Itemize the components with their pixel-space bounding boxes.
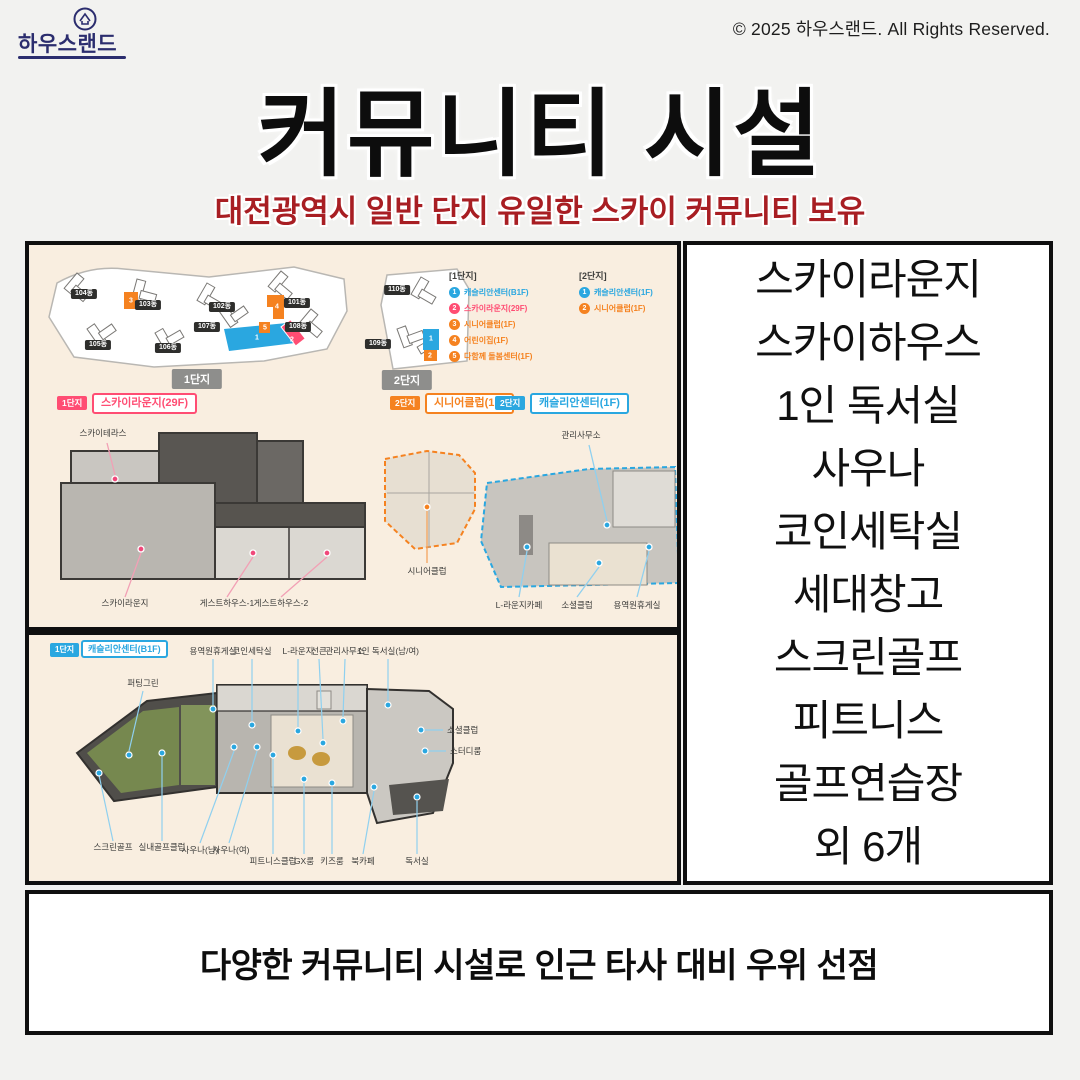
facility-list: 스카이라운지 스카이하우스 1인 독서실 사우나 코인세탁실 세대창고 스크린골…: [687, 245, 1049, 881]
facility-item: 스카이하우스: [687, 311, 1049, 374]
building-tag: 101동: [284, 298, 310, 308]
building-tag: 104동: [71, 289, 97, 299]
plans-panel: 104동 103동 102동 101동 105동 106동 107동 108동 …: [25, 241, 681, 631]
building-tag: 102동: [209, 302, 235, 312]
legend-complex1: [1단지] 1캐슬리안센터(B1F) 2스카이라운지(29F) 3시니어클럽(1…: [449, 269, 532, 362]
legend-label: 다함께 돌봄센터(1F): [464, 351, 532, 362]
poster-canvas: 하우스랜드 © 2025 하우스랜드. All Rights Reserved.…: [0, 0, 1080, 1080]
room-label: 북카페: [351, 857, 374, 866]
facility-item: 스크린골프: [687, 626, 1049, 689]
building-tag: 108동: [285, 322, 311, 332]
b1f-panel: 1단지 캐슬리안센터(B1F) 용역원휴게실 코인세탁실 L-라운지 선큰 관리…: [25, 631, 681, 885]
copyright-text: © 2025 하우스랜드. All Rights Reserved.: [733, 16, 1050, 41]
page-title: 커뮤니티 시설: [0, 58, 1080, 195]
room-label: 시니어클럽: [407, 567, 446, 576]
building-tag: 106동: [155, 343, 181, 353]
building-tag: 105동: [85, 340, 111, 350]
legend-label: 스카이라운지(29F): [464, 303, 527, 314]
room-label: 게스트하우스-1: [200, 599, 254, 608]
map-marker: 3: [129, 298, 133, 305]
room-label: L-라운지: [282, 647, 313, 656]
legend-title: [2단지]: [579, 269, 653, 282]
map-marker: 2: [290, 337, 294, 344]
room-label: 스크린골프: [93, 843, 132, 852]
room-label: 게스트하우스-2: [254, 599, 308, 608]
facility-item: 스카이라운지: [687, 248, 1049, 311]
room-label: 스카이라운지: [102, 599, 149, 608]
building-tag: 107동: [194, 322, 220, 332]
legend-complex2: [2단지] 1캐슬리안센터(1F) 2시니어클럽(1F): [579, 269, 653, 314]
legend-label: 시니어클럽(1F): [594, 303, 645, 314]
plan-badge: 1단지: [57, 396, 87, 410]
room-label: 1인 독서실(남/여): [357, 647, 419, 656]
legend-num: 2: [449, 303, 460, 314]
legend-num: 3: [449, 319, 460, 330]
room-label: 관리사무소: [561, 431, 600, 440]
legend-num: 1: [579, 287, 590, 298]
zone-tag-complex1: 1단지: [172, 369, 222, 389]
brand-name: 하우스랜드: [18, 28, 117, 58]
map-marker: 5: [263, 325, 267, 332]
plan-badge: 1단지: [50, 643, 79, 657]
legend-num: 1: [449, 287, 460, 298]
building-tag: 109동: [365, 339, 391, 349]
facility-item: 1인 독서실: [687, 374, 1049, 437]
legend-title: [1단지]: [449, 269, 532, 282]
legend-num: 2: [579, 303, 590, 314]
room-label: 용역원휴게실: [614, 601, 661, 610]
building-tag: 103동: [135, 300, 161, 310]
plan-title: 스카이라운지(29F): [92, 393, 197, 414]
facility-item: 세대창고: [687, 563, 1049, 626]
room-label: 용역원휴게실: [190, 647, 237, 656]
facility-item: 골프연습장: [687, 752, 1049, 815]
plan-title: 캐슬리안센터(B1F): [81, 640, 168, 658]
room-label: 사우나(여): [213, 846, 250, 855]
room-label: 코인세탁실: [232, 647, 271, 656]
room-label: GX룸: [294, 857, 314, 866]
facility-list-panel: 스카이라운지 스카이하우스 1인 독서실 사우나 코인세탁실 세대창고 스크린골…: [683, 241, 1053, 885]
map-marker: 4: [275, 304, 279, 311]
building-tag: 110동: [384, 285, 410, 295]
room-label: 소셜클럽: [561, 601, 592, 610]
legend-num: 5: [449, 351, 460, 362]
legend-label: 시니어클럽(1F): [464, 319, 515, 330]
legend-label: 어린이집(1F): [464, 335, 508, 346]
plan-title: 캐슬리안센터(1F): [530, 393, 629, 414]
facility-item: 코인세탁실: [687, 500, 1049, 563]
legend-label: 캐슬리안센터(B1F): [464, 287, 529, 298]
map-marker: 1: [255, 335, 259, 342]
footer-panel: 다양한 커뮤니티 시설로 인근 타사 대비 우위 선점: [25, 890, 1053, 1035]
facility-item: 외 6개: [687, 815, 1049, 878]
room-label: 소셜클럽: [447, 726, 478, 735]
room-label: L-라운지카페: [496, 601, 543, 610]
room-label: 피트니스클럽: [250, 857, 297, 866]
zone-tag-complex2: 2단지: [382, 370, 432, 390]
room-label: 키즈룸: [320, 857, 343, 866]
room-label: 퍼팅그린: [127, 679, 158, 688]
map-marker: 2: [428, 353, 432, 360]
legend-num: 4: [449, 335, 460, 346]
footer-text: 다양한 커뮤니티 시설로 인근 타사 대비 우위 선점: [200, 938, 878, 987]
plan-badge: 2단지: [390, 396, 420, 410]
facility-item: 사우나: [687, 437, 1049, 500]
map-marker: 1: [429, 336, 433, 343]
room-label: 스카이테라스: [80, 429, 127, 438]
plan-badge: 2단지: [495, 396, 525, 410]
room-label: 독서실: [405, 857, 428, 866]
room-label: 스터디룸: [450, 747, 481, 756]
page-subtitle: 대전광역시 일반 단지 유일한 스카이 커뮤니티 보유: [0, 186, 1080, 231]
room-label: 실내골프클럽: [139, 843, 186, 852]
legend-label: 캐슬리안센터(1F): [594, 287, 653, 298]
facility-item: 피트니스: [687, 689, 1049, 752]
